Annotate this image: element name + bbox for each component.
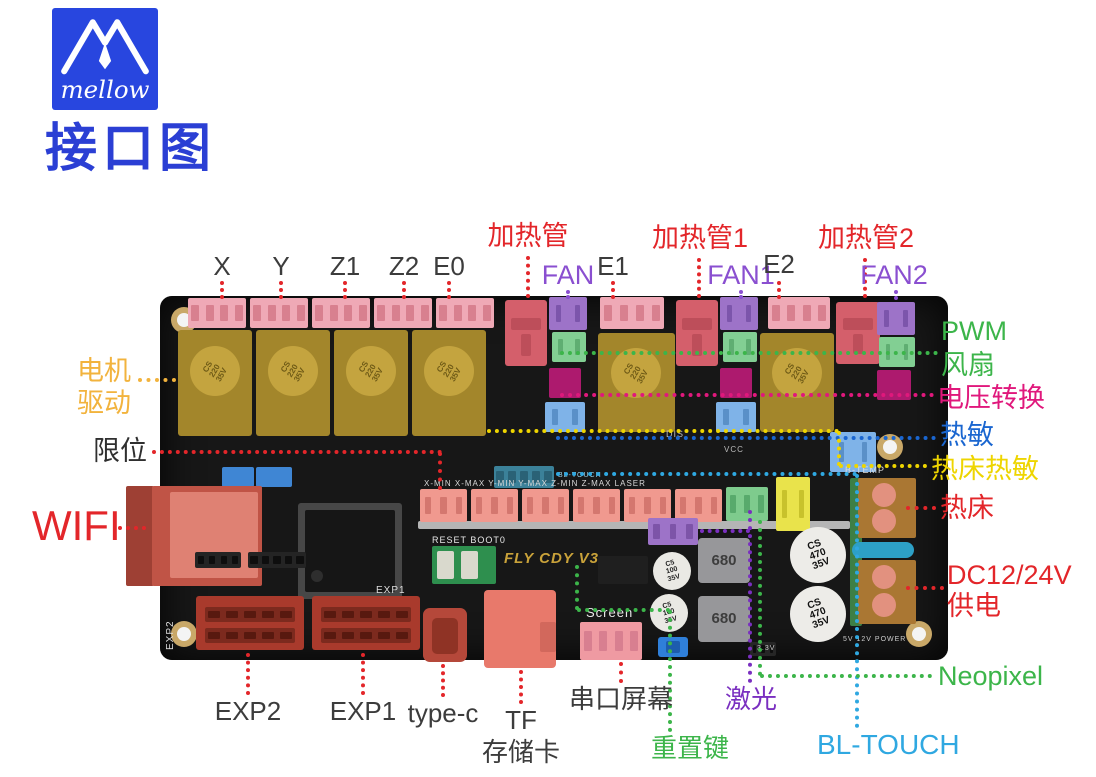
connector-pin [556,305,561,322]
connector-pin [620,305,628,322]
label-pwm-fan: 风扇 [941,351,995,381]
leader-limit-v [438,452,442,490]
mount-hole [177,627,191,641]
stepper-conn-e2 [768,297,830,329]
driver-cap: CS 220 35V [424,346,474,396]
leader-reset-h [577,608,670,612]
connector-pin [758,495,763,513]
leader-limit-h [152,450,442,454]
capacitor-small: C5 100 35V [653,552,691,590]
connector-pin [262,611,274,619]
exp2-wells [205,607,295,622]
leader-bed-therm-2 [837,431,841,466]
mount-hole [912,627,926,641]
silk-board-name: FLY CDY V3 [504,551,599,566]
fan1-conn [720,297,758,330]
connector-pin [280,611,292,619]
connector-pin [456,497,462,514]
connector-pin [468,305,476,321]
label-reset-key: 重置键 [651,734,729,763]
connector-pin [396,632,408,640]
connector-pin [787,305,795,322]
leader-fan [566,290,570,299]
connector-pin [221,556,227,564]
connector-pin [803,305,811,322]
reset-button [437,551,454,579]
connector-pin [220,305,228,321]
connector-pin [636,305,644,322]
connector-pin [686,524,693,538]
inductor: 680 [698,538,750,583]
exp1-wells [321,607,411,622]
connector-pin [578,497,584,514]
label-pwm: PWM [941,317,1007,347]
inductor-text: 680 [698,538,750,583]
leader-wifi [118,526,146,530]
exp1-wells [321,628,411,643]
label-power-2: 供电 [947,592,1001,622]
label-motor-2: 驱动 [77,389,131,419]
laser-conn-green [726,487,768,521]
connector-pin [360,611,372,619]
leader-laser-h [700,529,750,533]
connector-pin [604,305,612,322]
stepper-conn-x [188,298,246,328]
connector-pin [406,305,414,321]
pin-header [195,552,241,568]
fan2-conn [877,302,915,335]
terminal-screw [872,565,896,589]
leader-power [906,586,944,590]
connector-pin [527,497,533,514]
driver-cap: CS 220 35V [772,348,822,398]
connector-pin [359,305,367,321]
connector-pin [324,632,336,640]
label-typec: type-c [408,699,479,728]
label-thermistor: 热敏 [940,421,994,451]
connector-pin [491,497,497,514]
laser-conn-purple [648,518,698,545]
driver-cap: CS 220 35V [346,346,396,396]
leader-tf [519,670,523,704]
label-neopixel: Neopixel [938,662,1043,692]
label-tf-1: TF [505,706,537,735]
connector-pin [191,305,199,321]
label-tf-2: 存储卡 [482,738,560,767]
connector-pin [208,611,220,619]
leader-bed-therm-1 [487,429,839,433]
type-c-slot [432,618,458,654]
connector-pin [644,497,650,514]
driver-cap: CS 220 35V [268,346,318,396]
connector-pin [670,524,677,538]
leader-fan2 [894,290,898,300]
thermistor-conn [545,402,585,432]
connector-pin [425,497,431,514]
silk-exp2: EXP2 [166,620,176,650]
label-z1: Z1 [330,252,360,281]
stepper-conn-z1 [312,298,370,328]
connector-pin [630,631,638,651]
connector-pin [552,409,557,425]
label-power-1: DC12/24V [947,561,1072,591]
connector-pin [208,632,220,640]
leader-typec [441,664,445,697]
silk-exp1: EXP1 [376,586,406,596]
label-screen: 串口屏幕 [569,685,673,714]
connector-pin [378,632,390,640]
connector-pin [483,305,491,321]
connector-pin [315,305,323,321]
label-z2: Z2 [389,252,419,281]
leader-x [220,281,224,299]
inductor-text: 680 [698,596,750,642]
endstop-conn [522,489,569,522]
connector-pin [727,305,732,322]
connector-pin [421,305,429,321]
label-heater2: 加热管2 [818,224,914,254]
leader-exp2 [246,653,250,695]
connector-pin [296,556,304,564]
connector-pin [226,611,238,619]
connector-pin [297,305,305,321]
limit-conn [222,467,254,487]
leader-reset-v1 [575,565,579,610]
connector-pin [660,497,666,514]
driver-cap: CS 220 35V [611,348,661,398]
connector-pin [262,556,270,564]
connector-pin [268,305,276,321]
label-bed: 热床 [940,494,994,524]
label-laser: 激光 [725,685,777,714]
connector-pin [542,497,548,514]
mount-hole [883,440,897,454]
pwm-fan-conn [552,332,586,362]
connector-pin [454,305,462,321]
endstop-conn [573,489,620,522]
label-fan2: FAN2 [860,261,928,291]
leader-exp1 [361,653,365,695]
exp2-wells [205,628,295,643]
connector-pin [799,490,803,518]
inductor: 680 [698,596,750,642]
connector-pin [609,497,615,514]
connector-pin [235,305,243,321]
label-limit: 限位 [93,437,147,467]
logo-brand-text: mellow [60,75,149,104]
label-exp2: EXP2 [215,697,282,726]
leader-neopixel-v [758,520,762,676]
connector-pin [273,556,281,564]
label-e1: E1 [597,252,629,281]
heater-conn-slot [521,334,531,356]
leader-bltouch-h [556,472,857,476]
label-voltage: 电压转换 [937,384,1045,414]
label-heater1: 加热管1 [652,224,748,254]
label-exp1: EXP1 [330,697,397,726]
leader-neopixel-h [760,674,932,678]
leader-heater [526,256,530,298]
leader-y [279,281,283,299]
connector-pin [476,497,482,514]
connector-pin [250,556,258,564]
connector-pin [730,495,735,513]
connector-pin [377,305,385,321]
connector-pin [396,611,408,619]
connector-pin [903,310,908,327]
interface-diagram: mellow 接口图 CS 220 35VCS 220 35VCS 220 35… [0,0,1096,777]
connector-pin [772,305,780,322]
connector-pin [262,632,274,640]
heater-conn-slot [511,318,541,330]
connector-pin [330,305,338,321]
connector-pin [629,497,635,514]
connector-pin [599,631,607,651]
tf-card-notch [540,622,556,652]
label-bed-thermistor: 热床热敏 [931,455,1039,485]
terminal-screw [872,509,896,533]
connector-pin [226,632,238,640]
mellow-logo-icon: mellow [52,8,158,110]
mellow-logo: mellow [52,8,158,110]
driver-cap: CS 220 35V [190,346,240,396]
endstop-conn [420,489,467,522]
leader-bltouch-v [855,474,859,728]
leader-e1 [611,281,615,299]
leader-screen [619,662,623,683]
leader-z2 [402,281,406,299]
connector-pin [342,611,354,619]
leader-heater1 [697,258,701,298]
leader-pwm-fan [560,351,938,355]
screen-conn [580,622,642,660]
connector-pin [558,497,564,514]
leader-voltage [560,393,934,397]
connector-pin [244,611,256,619]
leader-thermistor [556,436,936,440]
connector-pin [344,305,352,321]
label-x: X [213,252,230,281]
bed-thermistor-conn [776,477,810,531]
connector-pin [392,305,400,321]
connector-pin [653,524,660,538]
connector-pin [575,305,580,322]
heater-conn [505,300,547,366]
connector-pin [440,497,446,514]
label-bltouch: BL-TOUCH [817,730,960,761]
fan-conn [549,297,587,330]
connector-pin [439,305,447,321]
leader-motor-driver [138,378,176,382]
leader-z1 [343,281,347,299]
connector-pin [584,631,592,651]
label-fan: FAN [542,261,595,291]
connector-pin [206,305,214,321]
connector-pin [593,497,599,514]
connector-pin [324,611,336,619]
connector-pin [818,305,826,322]
mcu-dot [311,570,323,582]
connector-pin [723,409,728,425]
connector-pin [209,556,215,564]
capacitor-large: CS 470 35V [790,527,846,583]
connector-pin [862,442,868,463]
stepper-conn-z2 [374,298,432,328]
label-e0: E0 [433,252,465,281]
boot0-button [461,551,478,579]
connector-pin [507,497,513,514]
connector-pin [282,305,290,321]
connector-pin [285,556,293,564]
label-wifi: WIFI [32,503,121,549]
connector-pin [342,632,354,640]
connector-pin [680,497,686,514]
connector-pin [232,556,238,564]
heater-conn-slot [843,318,873,330]
heater-conn-slot [682,318,712,330]
connector-pin [652,305,660,322]
connector-pin [743,409,748,425]
connector-pin [746,305,751,322]
silk-endstop-row: X-MIN X-MAX Y-MIN Y-MAX Z-MIN Z-MAX LASE… [424,480,646,488]
connector-pin [253,305,261,321]
connector-pin [244,632,256,640]
heater1-conn [676,300,718,366]
connector-pin [695,497,701,514]
leader-e0 [447,281,451,299]
wifi-antenna [126,486,154,586]
label-heater: 加热管 [488,222,569,252]
connector-pin [615,631,623,651]
sot-chip [598,556,648,584]
thermistor-conn [716,402,756,432]
pwm-fan-conn [723,332,757,362]
limit-conn [256,467,292,487]
connector-pin [198,556,204,564]
connector-pin [572,409,577,425]
endstop-conn [471,489,518,522]
pin-header [248,552,306,568]
silk-power: 5V 12V POWER [843,636,906,643]
page-title: 接口图 [45,106,216,181]
stepper-conn-e0 [436,298,494,328]
connector-pin [782,490,786,518]
connector-pin [884,310,889,327]
capacitor-large: CS 470 35V [790,586,846,642]
fuse [852,542,914,558]
connector-pin [360,632,372,640]
connector-pin [280,632,292,640]
connector-pin [711,497,717,514]
label-y: Y [272,252,289,281]
label-motor-1: 电机 [77,357,131,387]
leader-bed [906,506,936,510]
silk-vcc: VCC [724,446,744,454]
label-e2: E2 [763,250,795,279]
stepper-conn-e1 [600,297,664,329]
leader-fan1 [739,290,743,299]
terminal-screw [872,593,896,617]
connector-pin [378,611,390,619]
stepper-conn-y [250,298,308,328]
connector-pin [753,645,756,652]
leader-e2 [777,281,781,299]
leader-laser-v [748,510,752,683]
terminal-screw [872,483,896,507]
leader-bed-therm-3 [839,464,927,468]
silk-reset-boot0: RESET BOOT0 [432,536,506,545]
